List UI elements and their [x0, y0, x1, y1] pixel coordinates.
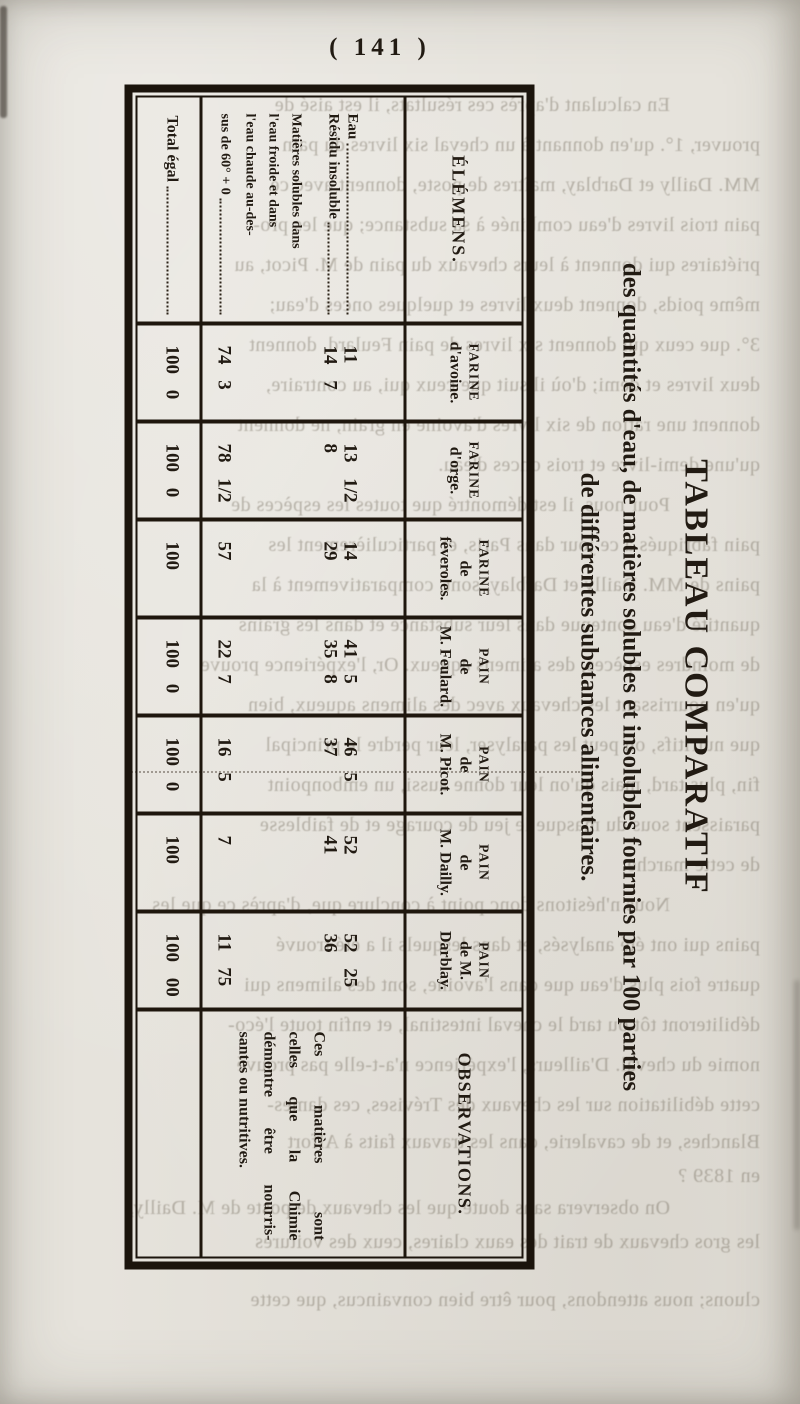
column-header: PAIN de M. Picot.	[404, 718, 522, 812]
column-header-line2: d'avoine.	[445, 342, 465, 404]
page-edge-smudge-right	[794, 980, 800, 1230]
value-matieres: 7	[214, 836, 234, 846]
table-subtitle-line2: de différentes substances alimentaires.	[573, 85, 605, 1270]
value-eau: 14	[340, 542, 360, 561]
total-cell: 100	[144, 522, 203, 616]
total-cell: 100	[144, 816, 203, 910]
column-header-line2: d'orge.	[445, 447, 465, 495]
column-header-line3: M. Dailly.	[435, 829, 455, 896]
observations-text-line-3: démontre être nourris-	[257, 1032, 282, 1241]
column-header: PAIN de M. Dailly.	[404, 816, 522, 910]
observations-header: OBSERVATIONS.	[454, 1053, 475, 1216]
value-residu: 29	[320, 542, 340, 561]
value-residu: 36	[320, 934, 340, 953]
value-matieres: 74 3	[214, 346, 234, 390]
elements-labels-cell: Eau Résidu insoluble Matières solubles d…	[203, 98, 404, 322]
column-values: 52 25 36 11 75	[203, 914, 404, 1008]
value-residu: 37	[320, 738, 340, 757]
value-total: 100 0	[161, 326, 183, 400]
column-header-line1: FARINE	[475, 540, 494, 598]
column-header-line1: PAIN	[475, 648, 494, 685]
observations-header-cell: OBSERVATIONS.	[404, 1012, 522, 1257]
column-header-line1: PAIN	[475, 942, 494, 979]
scanned-book-page: En calculant d'après ces résultats, il e…	[0, 0, 800, 1404]
value-eau: 11	[340, 346, 360, 364]
value-total: 100 0	[161, 620, 183, 694]
column-values: 11 14 7 74 3	[203, 326, 404, 420]
column-values: 13 1/2 8 78 1/2	[203, 424, 404, 518]
value-residu: 35 8	[320, 640, 340, 684]
row-label-eau-text: Eau	[343, 114, 362, 140]
table-subtitle-line1: des quantités d'eau, de matières soluble…	[615, 85, 647, 1270]
page-number: ( 141 )	[0, 34, 760, 62]
column-header-line1: FARINE	[465, 344, 484, 402]
column-header-line2: de	[455, 855, 475, 871]
observations-column: OBSERVATIONS. Ces matières sont celles q…	[138, 1008, 522, 1257]
column-farine-feveroles: FARINE de féveroles. 14 29 57 100	[138, 518, 522, 616]
column-header: PAIN de M. Feulard.	[404, 620, 522, 714]
row-label-residu: Résidu insoluble	[324, 114, 343, 318]
table-title: TABLEAU COMPARATIF	[673, 85, 719, 1270]
column-header: PAIN de M. Darblay.	[404, 914, 522, 1008]
value-matieres: 22 7	[214, 640, 234, 684]
observations-text-cell: Ces matières sont celles que la Chimie d…	[203, 1012, 404, 1257]
column-pain-feulard: PAIN de M. Feulard. 41 5 35 8 22 7 100 0	[138, 616, 522, 714]
column-values: 14 29 57	[203, 522, 404, 616]
elements-column: ÉLÉMENS. Eau Résidu insoluble Matières s…	[138, 98, 522, 322]
page-edge-smudge-left	[0, 6, 7, 118]
value-matieres: 16 5	[214, 738, 234, 782]
value-matieres: 78 1/2	[214, 444, 234, 503]
matieres-label-line-1: Matières solubles dans	[288, 114, 304, 318]
column-header-line3: M. Feulard.	[435, 626, 455, 707]
value-residu: 41	[320, 836, 340, 855]
column-pain-dailly: PAIN de M. Dailly. 52 41 7 100	[138, 812, 522, 910]
column-values: 52 41 7	[203, 816, 404, 910]
column-farine-avoine: FARINE d'avoine. 11 14 7 74 3 100 0	[138, 322, 522, 420]
total-cell: 100 0	[144, 326, 203, 420]
column-header-line1: FARINE	[465, 442, 484, 500]
column-header-line2: de	[455, 561, 475, 577]
value-total: 100	[161, 522, 183, 571]
value-total: 100 0	[161, 424, 183, 498]
matieres-label-line-3: l'eau chaude au-des-	[242, 114, 258, 318]
column-header-line2: de	[455, 659, 475, 675]
value-eau: 52	[340, 836, 360, 855]
value-total: 100 00	[161, 914, 183, 997]
value-eau: 52 25	[340, 934, 360, 988]
value-residu: 14 7	[320, 346, 340, 390]
column-header: FARINE d'orge.	[404, 424, 522, 518]
value-total: 100	[161, 816, 183, 865]
table-frame-inner: ÉLÉMENS. Eau Résidu insoluble Matières s…	[136, 96, 524, 1259]
column-header: FARINE d'avoine.	[404, 326, 522, 420]
column-header-line1: PAIN	[475, 746, 494, 783]
total-label-row: Total égal	[163, 98, 181, 322]
total-cell: 100 0	[144, 424, 203, 518]
observations-text-line-2: celles que la Chimie	[282, 1032, 307, 1241]
observations-total-cell	[144, 1012, 203, 1257]
value-matieres: 57	[214, 542, 234, 561]
column-farine-orge: FARINE d'orge. 13 1/2 8 78 1/2 100 0	[138, 420, 522, 518]
column-pain-darblay: PAIN de M. Darblay. 52 25 36 11 75 100 0…	[138, 910, 522, 1008]
column-header-line2: de M.	[455, 941, 475, 980]
leader-dots	[220, 199, 222, 315]
total-cell: 100 0	[144, 620, 203, 714]
column-header-line3: M. Picot.	[435, 734, 455, 796]
leader-dots	[167, 186, 169, 314]
table-frame: ÉLÉMENS. Eau Résidu insoluble Matières s…	[125, 85, 535, 1270]
leader-dots	[347, 143, 349, 314]
leader-dots	[328, 223, 330, 315]
value-residu: 8	[320, 444, 340, 454]
column-header-line3: féveroles.	[435, 536, 455, 600]
value-eau: 41 5	[340, 640, 360, 684]
total-label-text: Total égal	[163, 116, 181, 183]
total-cell: 100 00	[144, 914, 203, 1008]
value-matieres: 11 75	[214, 934, 234, 987]
elements-header: ÉLÉMENS.	[448, 155, 469, 264]
observations-text-line-1: Ces matières sont	[307, 1032, 332, 1241]
column-values: 41 5 35 8 22 7	[203, 620, 404, 714]
total-label-cell: Total égal	[144, 98, 203, 322]
matieres-label-line-4: sus de 60° + 0	[216, 114, 235, 318]
column-header: FARINE de féveroles.	[404, 522, 522, 616]
column-header-line1: PAIN	[475, 844, 494, 881]
row-label-eau: Eau	[343, 114, 362, 318]
observations-text: Ces matières sont celles que la Chimie d…	[232, 1012, 404, 1257]
rotated-table-block: TABLEAU COMPARATIF des quantités d'eau, …	[111, 85, 721, 1270]
matieres-label-line-2: l'eau froide et dans	[265, 114, 281, 318]
column-header-line3: Darblay.	[435, 931, 455, 990]
value-total: 100 0	[161, 718, 183, 792]
value-eau: 13 1/2	[340, 444, 360, 503]
elements-header-cell: ÉLÉMENS.	[404, 98, 522, 322]
matieres-label-line-4-text: sus de 60° + 0	[216, 114, 235, 195]
ghost-line: cluons; nous attendons, pour être bien c…	[0, 1288, 800, 1312]
observations-text-line-4: santes ou nutritives.	[232, 1032, 257, 1241]
value-eau: 46 5	[340, 738, 360, 782]
column-header-line2: de	[455, 757, 475, 773]
column-values: 46 5 37 16 5	[203, 718, 404, 812]
row-label-residu-text: Résidu insoluble	[324, 114, 343, 219]
total-cell: 100 0	[144, 718, 203, 812]
column-pain-picot: PAIN de M. Picot. 46 5 37 16 5 100 0	[138, 714, 522, 812]
